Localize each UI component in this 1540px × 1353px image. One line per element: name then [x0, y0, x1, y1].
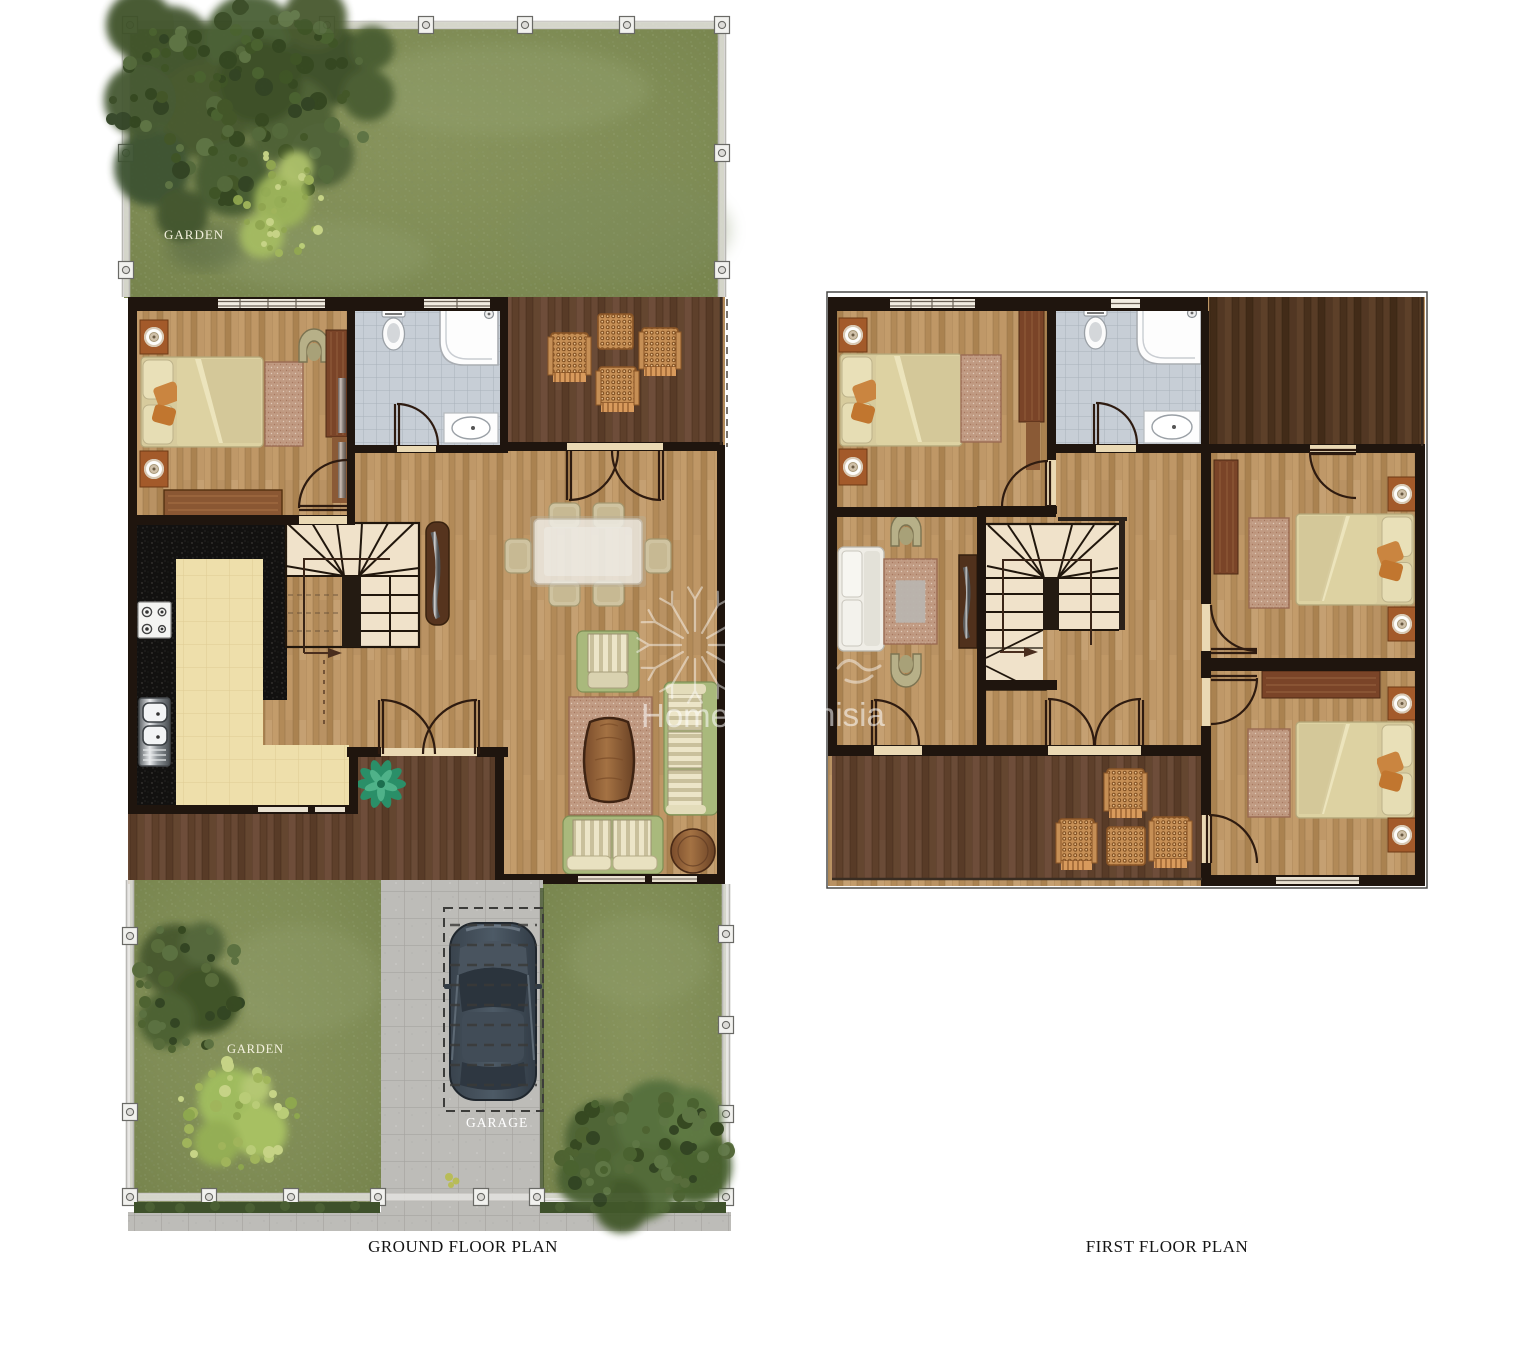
svg-text:GARAGE: GARAGE [466, 1115, 528, 1130]
svg-text:GARDEN: GARDEN [164, 227, 224, 242]
svg-text:GARDEN: GARDEN [227, 1042, 284, 1056]
svg-text:nisia: nisia [817, 696, 886, 733]
svg-text:FIRST FLOOR PLAN: FIRST FLOOR PLAN [1086, 1237, 1249, 1256]
svg-text:GROUND FLOOR PLAN: GROUND FLOOR PLAN [368, 1237, 558, 1256]
svg-text:Home: Home [641, 697, 729, 734]
